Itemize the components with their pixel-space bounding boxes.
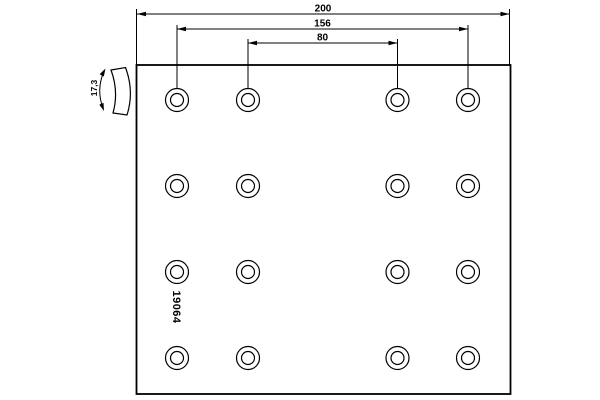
rivet-hole-inner	[391, 180, 404, 193]
rivet-hole-inner	[391, 352, 404, 365]
dim-200-arrow-left	[137, 12, 146, 16]
lining-plate	[137, 65, 511, 394]
rivet-hole-inner	[462, 94, 475, 107]
cross-section-symbol: 17,3	[89, 68, 130, 116]
rivet-hole-inner	[242, 266, 255, 279]
rivet-hole-inner	[391, 266, 404, 279]
dim-156-arrow-left	[177, 27, 186, 31]
part-number-label: 19064	[170, 290, 182, 323]
lining-cross-section-band	[111, 68, 130, 116]
rivet-hole-inner	[242, 180, 255, 193]
rivet-hole-inner	[171, 352, 184, 365]
thickness-label: 17,3	[89, 79, 99, 96]
brake-lining-technical-drawing: 200 156 80 17,3 19064	[0, 0, 600, 400]
dim-156-label: 156	[314, 19, 331, 30]
dim-80-label: 80	[317, 33, 329, 44]
rivet-hole-inner	[242, 94, 255, 107]
thickness-arrow-bottom	[99, 103, 104, 111]
rivet-hole-inner	[391, 94, 404, 107]
rivet-hole-inner	[462, 266, 475, 279]
rivet-hole-inner	[171, 266, 184, 279]
dim-200-arrow-right	[501, 12, 510, 16]
rivet-hole-inner	[242, 352, 255, 365]
thickness-dim-arc	[100, 71, 104, 108]
thickness-arrow-top	[100, 69, 106, 77]
rivet-hole-inner	[171, 180, 184, 193]
rivet-hole-inner	[462, 180, 475, 193]
dim-200-label: 200	[315, 4, 332, 15]
rivet-hole-inner	[171, 94, 184, 107]
dim-80-arrow-left	[248, 41, 257, 45]
rivet-hole-inner	[462, 352, 475, 365]
dim-80-arrow-right	[389, 41, 398, 45]
dim-156-arrow-right	[459, 27, 468, 31]
